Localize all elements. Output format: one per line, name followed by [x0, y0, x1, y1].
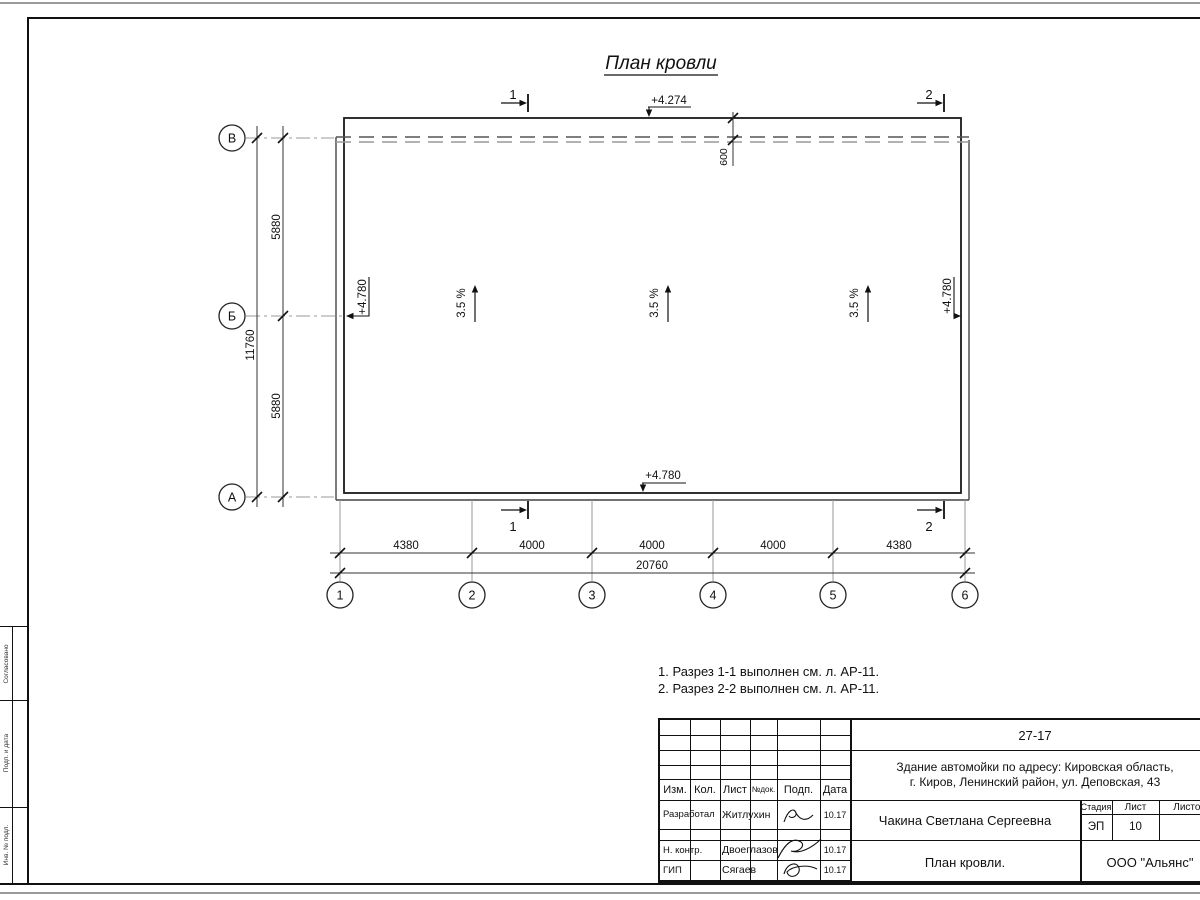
slope-arrowhead: [472, 285, 478, 293]
project-line: г. Киров, Ленинский район, ул. Деповская…: [910, 775, 1161, 790]
divider-line: [660, 829, 850, 830]
stamp-col-header: Лист: [720, 779, 750, 800]
stamp-col-header: №док.: [750, 779, 777, 800]
slope-label: 3.5 %: [849, 288, 861, 317]
stamp-name: Двоеглазов: [722, 840, 777, 860]
stamp-role: ГИП: [663, 860, 719, 880]
section-mark-2-bottom: 2: [917, 501, 944, 534]
section-number: 2: [925, 519, 932, 534]
slope-label: 3.5 %: [649, 288, 661, 317]
dim-label: 4000: [760, 540, 786, 552]
divider-line: [660, 765, 850, 766]
section-mark-2-top: 2: [917, 87, 944, 112]
axis-bubble-label: 5: [830, 589, 837, 603]
sheet-number: 10: [1112, 814, 1159, 840]
section-mark-1-bottom: 1: [501, 501, 528, 534]
drawing-name: План кровли.: [850, 840, 1080, 885]
stamp-col-header: Изм.: [660, 779, 690, 800]
stamp-role: Разработал: [663, 800, 719, 829]
slope-label: 3.5 %: [456, 288, 468, 317]
elevation-leader: [954, 277, 957, 316]
section-arrowhead: [520, 100, 528, 106]
roof-plan-drawing: План кровли 4380 4000 4000 4000 4380 207…: [0, 0, 1200, 650]
stage-label: Стадия: [1080, 800, 1112, 814]
sheet-edge-bottom: [0, 892, 1200, 894]
sheets-total-label: Листов: [1159, 800, 1200, 814]
elevation-label-left: +4.780: [357, 279, 369, 315]
stamp-date: 10.17: [820, 840, 850, 860]
section-arrowhead: [936, 507, 944, 513]
elevation-arrowhead: [954, 313, 962, 319]
axis-bubble-label: 2: [469, 589, 476, 603]
dimension-ticks: [252, 113, 970, 578]
section-arrowhead: [936, 100, 944, 106]
stamp-col-header: Подп.: [777, 779, 820, 800]
note-line: 1. Разрез 1-1 выполнен см. л. АР-11.: [658, 664, 879, 681]
stamp-col-header: Кол.: [690, 779, 720, 800]
divider-line: [660, 735, 850, 736]
organization-name: ООО "Альянс": [1080, 840, 1200, 885]
slope-arrow-group: 3.5 %: [456, 285, 478, 322]
elevation-label-top: +4.274: [651, 95, 687, 107]
dim-label: 4380: [393, 540, 419, 552]
section-number: 1: [509, 519, 516, 534]
dim-label: 5880: [271, 214, 283, 240]
axis-bubble-label: 6: [962, 589, 969, 603]
stamp-role: Н. контр.: [663, 840, 719, 860]
section-number: 1: [509, 87, 516, 102]
axis-bubble-label: 1: [337, 589, 344, 603]
dim-label: 4380: [886, 540, 912, 552]
elevation-arrowhead: [346, 313, 354, 319]
axis-bubbles-cols: 1 2 3 4 5 6: [327, 582, 978, 608]
divider-line: [0, 807, 28, 808]
axis-bubble-label: Б: [228, 310, 236, 324]
axis-lines-horizontal: [246, 138, 344, 497]
dim-total-label: 11760: [245, 329, 257, 360]
side-stamp-label: Подп. и дата: [0, 718, 12, 788]
elevation-arrowhead: [640, 485, 646, 493]
signature: [778, 858, 822, 882]
elevation-label-bottom: +4.780: [645, 470, 681, 482]
stamp-name: Житлухин: [722, 800, 777, 829]
axis-bubble-label: 4: [710, 589, 717, 603]
slope-arrowhead: [865, 285, 871, 293]
elevation-leader: [648, 107, 691, 111]
stage-value: ЭП: [1080, 814, 1112, 840]
drawing-sheet: Согласовано Подп. и дата Инв. № подл. Пл…: [0, 0, 1200, 900]
dimension-lines: [257, 126, 975, 573]
dim-total-label: 20760: [636, 560, 668, 572]
dim-label: 5880: [271, 393, 283, 419]
note-line: 2. Разрез 2-2 выполнен см. л. АР-11.: [658, 681, 879, 698]
stamp-date: 10.17: [820, 800, 850, 829]
plan-title: План кровли: [605, 53, 717, 74]
section-mark-1-top: 1: [501, 87, 528, 112]
axis-bubble-label: 3: [589, 589, 596, 603]
stamp-col-header: Дата: [820, 779, 850, 800]
slope-arrow-group: 3.5 %: [649, 285, 671, 322]
section-number: 2: [925, 87, 932, 102]
author-name: Чакина Светлана Сергеевна: [850, 800, 1080, 840]
axis-bubbles-rows: В Б А: [219, 125, 245, 510]
title-block: Изм. Кол. Лист №док. Подп. Дата Разработ…: [658, 718, 1200, 883]
divider-line: [12, 626, 13, 884]
dim-label: 4000: [519, 540, 545, 552]
divider-line: [0, 700, 28, 701]
elevation-arrowhead: [646, 110, 652, 118]
slope-arrow-group: 3.5 %: [849, 285, 871, 322]
overhang-dim-label: 600: [718, 148, 730, 166]
slope-arrowhead: [665, 285, 671, 293]
project-line: Здание автомойки по адресу: Кировская об…: [896, 760, 1173, 775]
notes-block: 1. Разрез 1-1 выполнен см. л. АР-11. 2. …: [658, 664, 879, 697]
project-description: Здание автомойки по адресу: Кировская об…: [850, 750, 1200, 800]
side-stamp-label: Инв. № подл.: [0, 810, 12, 880]
axis-bubble-label: В: [228, 132, 236, 146]
dim-label: 4000: [639, 540, 665, 552]
stamp-name: Сягаев: [722, 860, 777, 880]
sheet-label: Лист: [1112, 800, 1159, 814]
stamp-date: 10.17: [820, 860, 850, 880]
signature: [780, 804, 820, 828]
axis-bubble-label: А: [228, 491, 237, 505]
doc-code: 27-17: [850, 720, 1200, 750]
elevation-leader: [642, 483, 686, 486]
elevation-label-right: +4.780: [942, 278, 954, 314]
section-arrowhead: [520, 507, 528, 513]
